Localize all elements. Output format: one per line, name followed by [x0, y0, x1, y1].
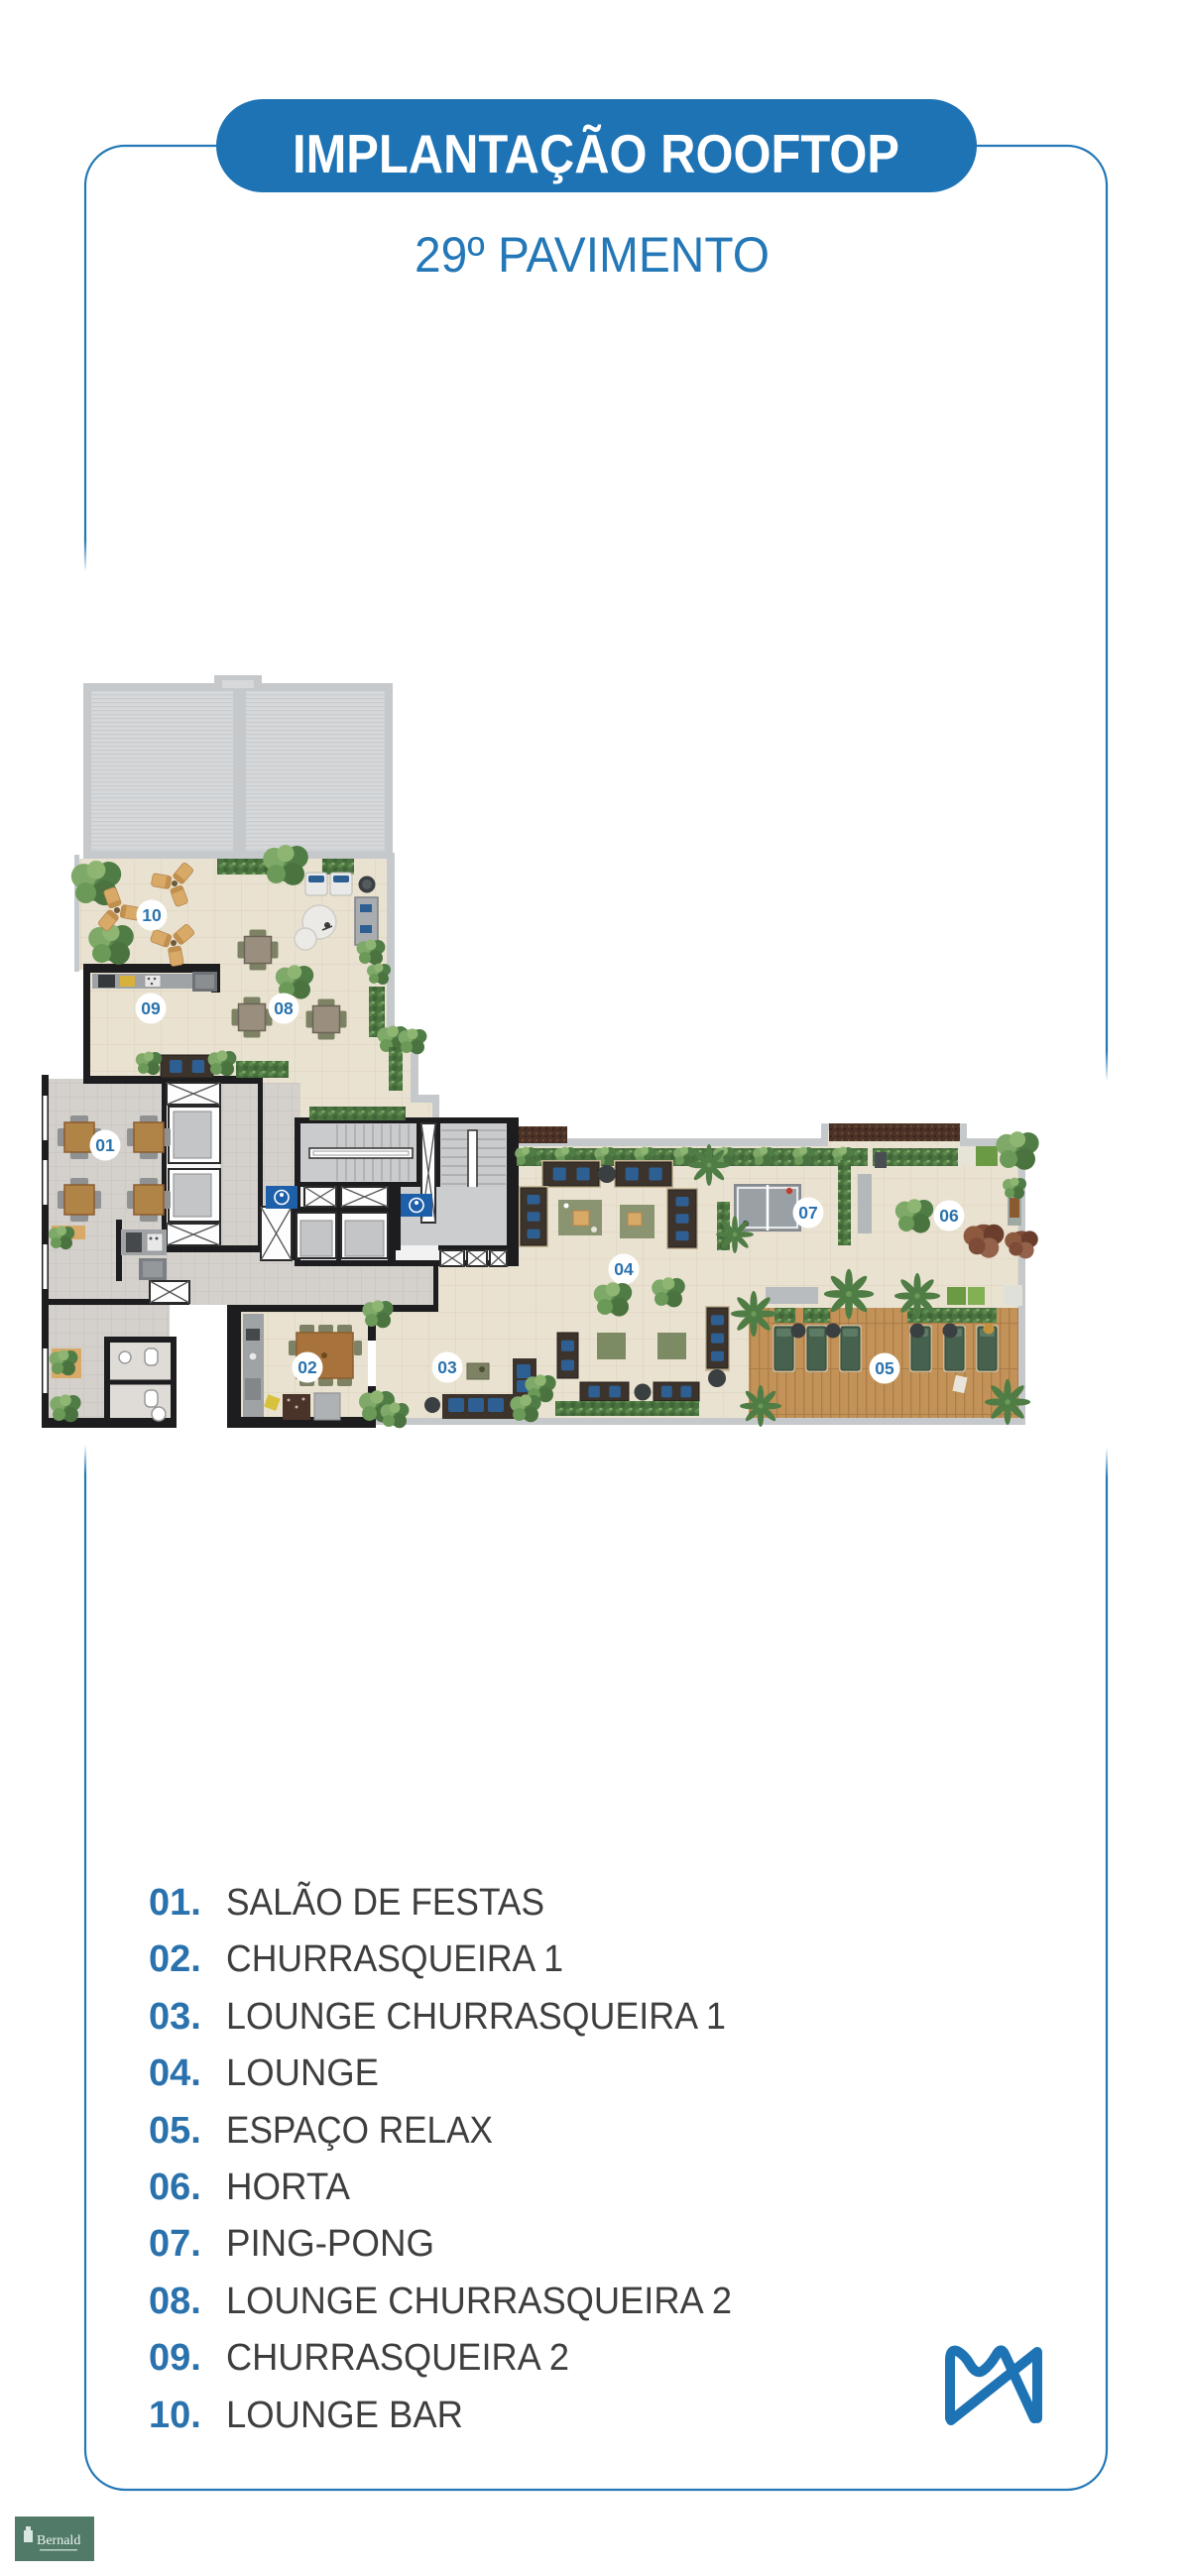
- svg-text:Bernald: Bernald: [37, 2533, 80, 2548]
- svg-text:04: 04: [614, 1259, 634, 1279]
- svg-text:LOUNGE: LOUNGE: [226, 2052, 379, 2094]
- svg-text:10.: 10.: [149, 2395, 201, 2436]
- svg-text:09: 09: [141, 998, 161, 1018]
- svg-text:LOUNGE BAR: LOUNGE BAR: [226, 2395, 463, 2436]
- svg-text:SALÃO DE FESTAS: SALÃO DE FESTAS: [226, 1881, 544, 1924]
- svg-text:09.: 09.: [149, 2337, 201, 2379]
- svg-text:05: 05: [875, 1358, 894, 1378]
- svg-text:ESPAÇO RELAX: ESPAÇO RELAX: [226, 2110, 493, 2152]
- svg-text:02.: 02.: [149, 1938, 201, 1980]
- svg-text:01: 01: [95, 1135, 115, 1155]
- svg-text:IMPLANTAÇÃO ROOFTOP: IMPLANTAÇÃO ROOFTOP: [293, 123, 899, 184]
- svg-text:CHURRASQUEIRA 2: CHURRASQUEIRA 2: [226, 2337, 569, 2379]
- svg-text:10: 10: [142, 905, 162, 925]
- svg-text:03.: 03.: [149, 1996, 201, 2038]
- svg-text:CHURRASQUEIRA 1: CHURRASQUEIRA 1: [226, 1938, 563, 1980]
- svg-text:PING-PONG: PING-PONG: [226, 2223, 434, 2265]
- svg-text:08: 08: [274, 998, 294, 1018]
- svg-text:29º PAVIMENTO: 29º PAVIMENTO: [415, 227, 770, 283]
- svg-text:HORTA: HORTA: [226, 2166, 351, 2208]
- svg-text:02: 02: [297, 1357, 317, 1377]
- svg-text:03: 03: [437, 1357, 457, 1377]
- svg-text:06: 06: [939, 1206, 959, 1226]
- svg-text:04.: 04.: [149, 2052, 201, 2094]
- svg-text:05.: 05.: [149, 2110, 201, 2152]
- svg-text:LOUNGE CHURRASQUEIRA 1: LOUNGE CHURRASQUEIRA 1: [226, 1996, 726, 2038]
- svg-text:01.: 01.: [149, 1882, 201, 1924]
- svg-text:08.: 08.: [149, 2281, 201, 2322]
- svg-text:07.: 07.: [149, 2223, 201, 2265]
- svg-text:06.: 06.: [149, 2166, 201, 2208]
- svg-text:LOUNGE CHURRASQUEIRA 2: LOUNGE CHURRASQUEIRA 2: [226, 2281, 732, 2322]
- svg-text:07: 07: [798, 1203, 817, 1223]
